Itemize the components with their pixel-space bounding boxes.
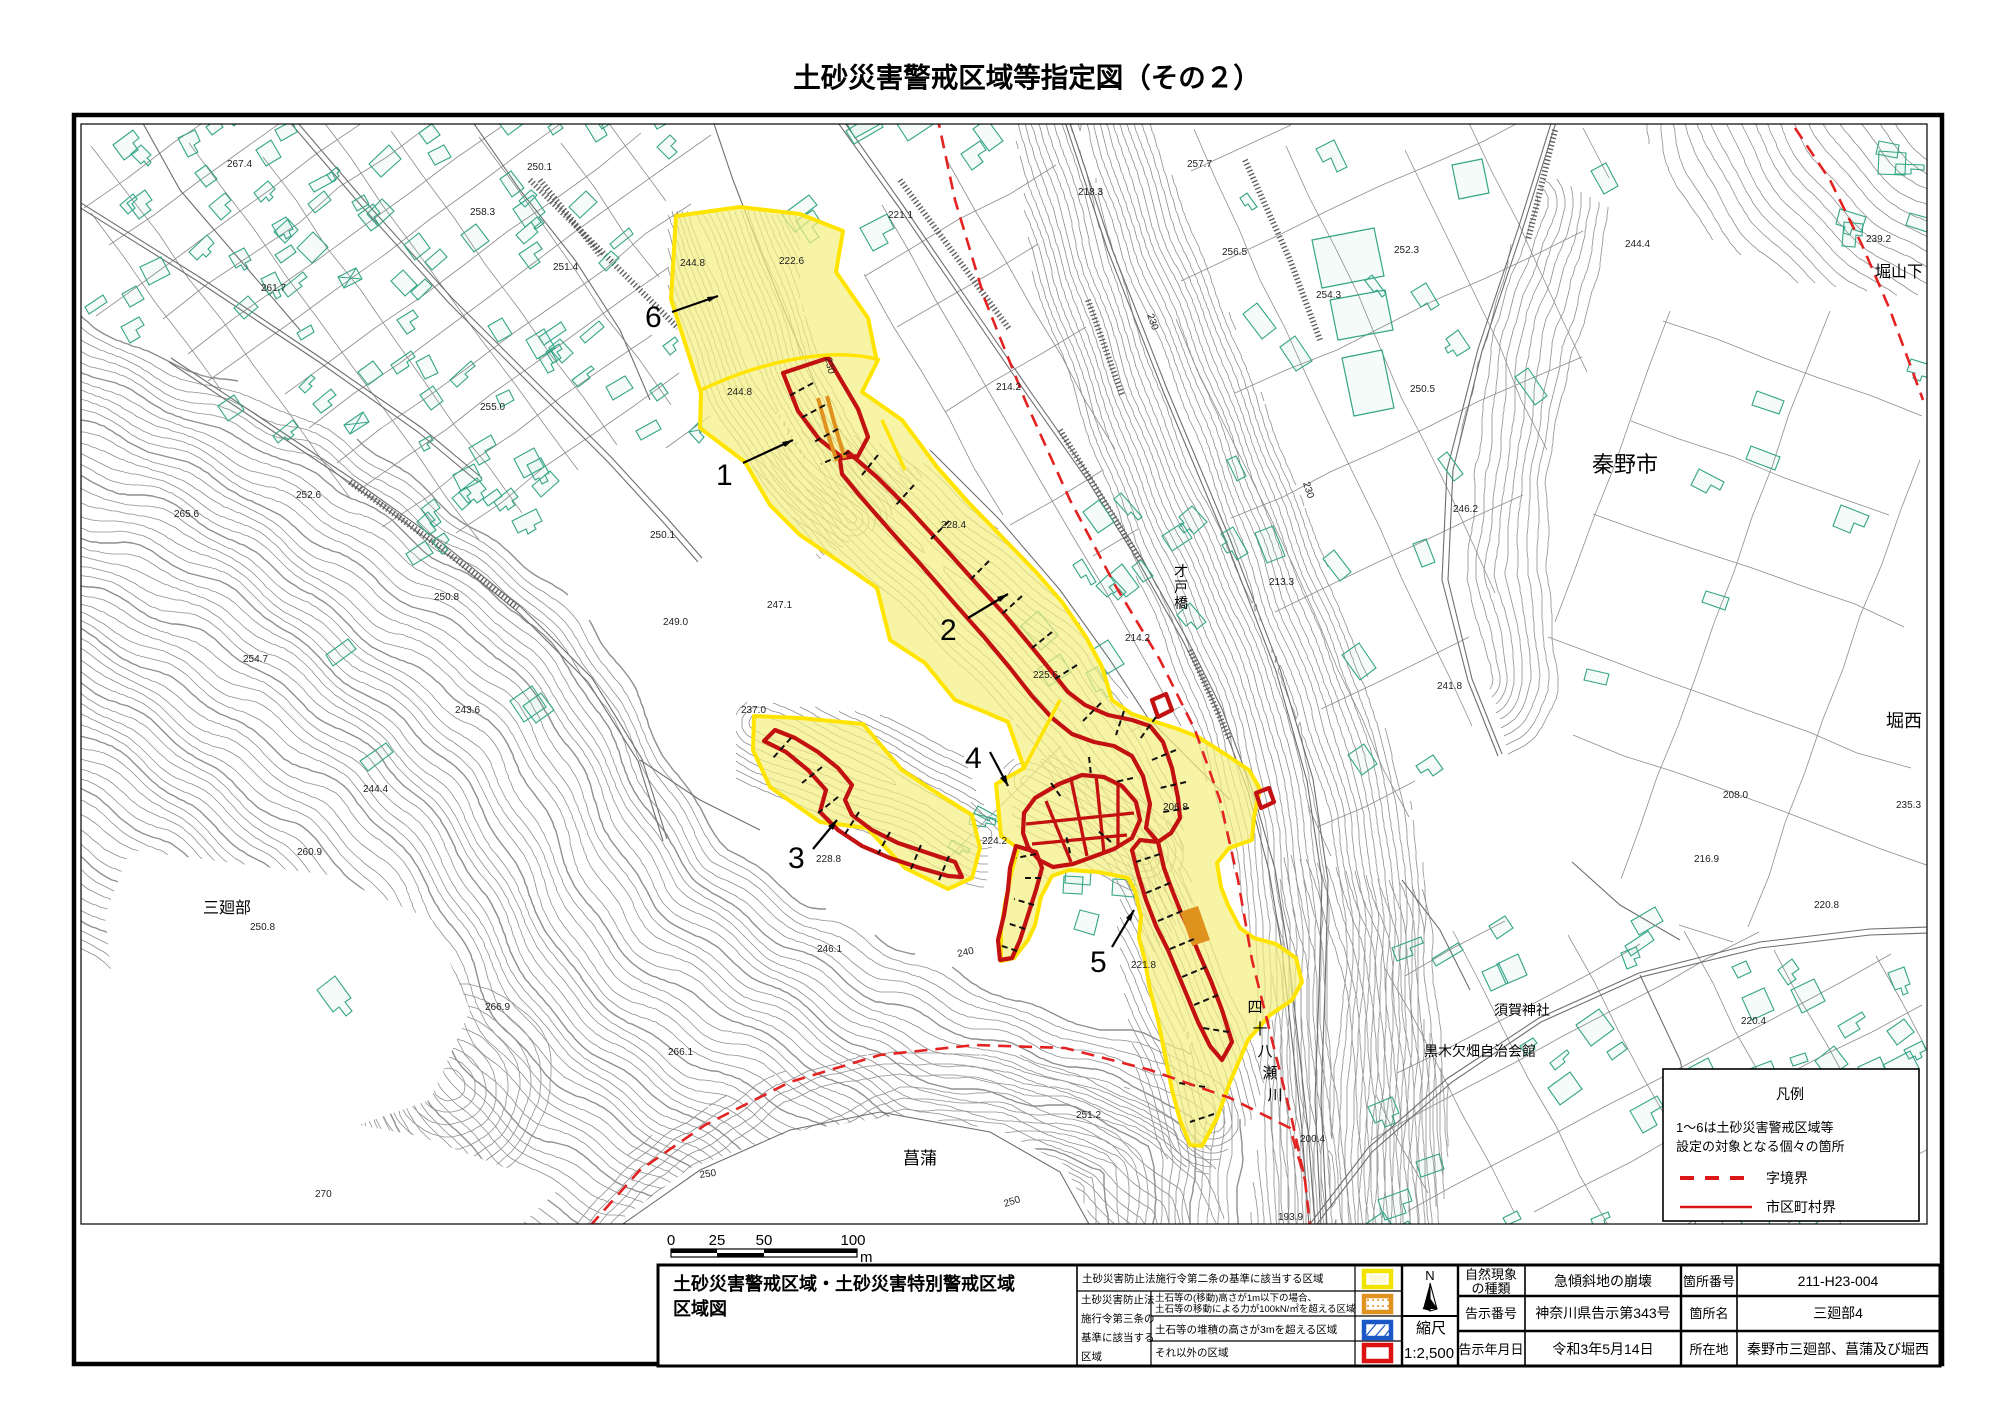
svg-text:0: 0 [667, 1232, 675, 1249]
svg-text:の種類: の種類 [1471, 1281, 1510, 1296]
svg-text:214.2: 214.2 [996, 382, 1021, 393]
svg-text:区域: 区域 [1081, 1350, 1103, 1363]
svg-text:施行令第三条の: 施行令第三条の [1081, 1312, 1155, 1325]
svg-text:254.7: 254.7 [243, 654, 268, 665]
svg-text:縮尺: 縮尺 [1416, 1320, 1446, 1337]
svg-text:251.4: 251.4 [553, 262, 578, 273]
svg-text:堀山下: 堀山下 [1875, 263, 1923, 281]
svg-text:256.5: 256.5 [1222, 247, 1247, 258]
svg-text:それ以外の区域: それ以外の区域 [1155, 1346, 1229, 1359]
svg-text:250.1: 250.1 [527, 162, 552, 173]
svg-text:266.9: 266.9 [485, 1002, 510, 1013]
svg-text:239.2: 239.2 [1866, 234, 1891, 245]
svg-text:土砂災害警戒区域等指定図（その２）: 土砂災害警戒区域等指定図（その２） [793, 62, 1261, 93]
svg-text:三廻部4: 三廻部4 [1813, 1305, 1863, 1321]
svg-text:252.3: 252.3 [1394, 245, 1419, 256]
svg-text:249.0: 249.0 [663, 617, 688, 628]
svg-text:告示番号: 告示番号 [1465, 1306, 1517, 1321]
svg-text:266.1: 266.1 [668, 1047, 693, 1058]
svg-text:1～6は土砂災害警戒区域等: 1～6は土砂災害警戒区域等 [1676, 1120, 1833, 1135]
svg-text:菖蒲: 菖蒲 [903, 1149, 937, 1168]
svg-text:252.6: 252.6 [296, 490, 321, 501]
svg-text:267.4: 267.4 [227, 159, 252, 170]
svg-text:216.9: 216.9 [1694, 854, 1719, 865]
svg-text:2: 2 [940, 614, 957, 647]
svg-text:255.0: 255.0 [480, 402, 505, 413]
svg-text:244.4: 244.4 [1625, 239, 1650, 250]
svg-text:土砂災害防止法施行令第二条の基準に該当する区域: 土砂災害防止法施行令第二条の基準に該当する区域 [1082, 1272, 1324, 1285]
svg-text:5: 5 [1090, 946, 1107, 979]
svg-text:瀬: 瀬 [1262, 1065, 1277, 1082]
svg-text:251.2: 251.2 [1076, 1110, 1101, 1121]
svg-text:228.8: 228.8 [816, 854, 841, 865]
svg-text:m: m [860, 1249, 873, 1266]
svg-text:50: 50 [756, 1232, 773, 1249]
svg-text:土砂災害警戒区域・土砂災害特別警戒区域: 土砂災害警戒区域・土砂災害特別警戒区域 [673, 1273, 1015, 1294]
svg-text:221.1: 221.1 [888, 210, 913, 221]
svg-text:208.0: 208.0 [1723, 790, 1748, 801]
svg-text:区域図: 区域図 [673, 1298, 727, 1319]
svg-text:228.4: 228.4 [941, 520, 966, 531]
svg-text:246.1: 246.1 [817, 944, 842, 955]
svg-text:206.8: 206.8 [1163, 802, 1188, 813]
svg-text:224.2: 224.2 [982, 836, 1007, 847]
svg-text:4: 4 [965, 742, 982, 775]
svg-text:270: 270 [315, 1189, 332, 1200]
svg-text:十: 十 [1252, 1021, 1267, 1038]
svg-text:土石等の(移動)高さが1m以下の場合、: 土石等の(移動)高さが1m以下の場合、 [1155, 1292, 1317, 1304]
svg-text:川: 川 [1267, 1087, 1282, 1104]
svg-text:213.3: 213.3 [1269, 577, 1294, 588]
svg-text:200.4: 200.4 [1300, 1134, 1325, 1145]
svg-text:265.6: 265.6 [174, 509, 199, 520]
svg-text:箇所番号: 箇所番号 [1683, 1274, 1735, 1289]
svg-text:急傾斜地の崩壊: 急傾斜地の崩壊 [1554, 1273, 1652, 1289]
svg-text:257.7: 257.7 [1187, 159, 1212, 170]
svg-text:1: 1 [716, 459, 733, 492]
svg-text:須賀神社: 須賀神社 [1494, 1002, 1550, 1018]
svg-text:設定の対象となる個々の箇所: 設定の対象となる個々の箇所 [1676, 1139, 1845, 1154]
svg-text:100: 100 [840, 1232, 865, 1249]
svg-text:222.6: 222.6 [779, 256, 804, 267]
svg-text:244.4: 244.4 [363, 784, 388, 795]
svg-text:自然現象: 自然現象 [1465, 1267, 1517, 1282]
svg-text:220.4: 220.4 [1741, 1016, 1766, 1027]
svg-text:193.9: 193.9 [1278, 1212, 1303, 1223]
svg-text:戸: 戸 [1174, 579, 1188, 595]
svg-text:218.3: 218.3 [1078, 187, 1103, 198]
svg-text:254.3: 254.3 [1316, 290, 1341, 301]
svg-text:261.7: 261.7 [261, 283, 286, 294]
svg-text:211-H23-004: 211-H23-004 [1798, 1273, 1879, 1289]
svg-text:237.0: 237.0 [741, 705, 766, 716]
svg-text:241.8: 241.8 [1437, 681, 1462, 692]
svg-text:243.6: 243.6 [455, 705, 480, 716]
svg-text:250.5: 250.5 [1410, 384, 1435, 395]
svg-text:市区町村界: 市区町村界 [1766, 1199, 1836, 1215]
svg-text:四: 四 [1247, 999, 1262, 1016]
svg-text:所在地: 所在地 [1689, 1342, 1728, 1357]
svg-text:基準に該当する: 基準に該当する [1081, 1331, 1155, 1344]
svg-text:土石等の移動による力が100kN/㎡を超える区域: 土石等の移動による力が100kN/㎡を超える区域 [1155, 1303, 1356, 1315]
svg-text:橋: 橋 [1174, 595, 1188, 611]
svg-text:260.9: 260.9 [297, 847, 322, 858]
svg-text:235.3: 235.3 [1896, 800, 1921, 811]
svg-text:214.2: 214.2 [1125, 633, 1150, 644]
svg-text:黒木欠畑自治会館: 黒木欠畑自治会館 [1424, 1043, 1536, 1059]
svg-text:八: 八 [1257, 1043, 1272, 1060]
svg-text:告示年月日: 告示年月日 [1458, 1342, 1523, 1357]
svg-text:247.1: 247.1 [767, 600, 792, 611]
svg-text:220.8: 220.8 [1814, 900, 1839, 911]
svg-text:土砂災害防止法: 土砂災害防止法 [1081, 1293, 1155, 1306]
svg-text:6: 6 [645, 301, 662, 334]
svg-text:字境界: 字境界 [1766, 1170, 1808, 1186]
svg-text:244.8: 244.8 [680, 258, 705, 269]
svg-text:箇所名: 箇所名 [1689, 1306, 1728, 1321]
svg-text:N: N [1425, 1268, 1434, 1283]
svg-text:神奈川県告示第343号: 神奈川県告示第343号 [1535, 1305, 1670, 1321]
svg-text:221.8: 221.8 [1131, 960, 1156, 971]
svg-text:25: 25 [709, 1232, 726, 1249]
svg-text:244.8: 244.8 [727, 387, 752, 398]
svg-text:250.1: 250.1 [650, 530, 675, 541]
svg-text:土石等の堆積の高さが3mを超える区域: 土石等の堆積の高さが3mを超える区域 [1155, 1323, 1338, 1336]
svg-text:凡例: 凡例 [1776, 1086, 1804, 1102]
svg-text:堀西: 堀西 [1886, 711, 1922, 731]
svg-text:250.8: 250.8 [434, 592, 459, 603]
svg-text:三廻部: 三廻部 [203, 899, 251, 917]
svg-text:秦野市: 秦野市 [1592, 452, 1658, 477]
svg-text:才: 才 [1174, 563, 1188, 579]
svg-text:秦野市三廻部、菖蒲及び堀西: 秦野市三廻部、菖蒲及び堀西 [1747, 1341, 1929, 1357]
svg-text:1:2,500: 1:2,500 [1404, 1345, 1454, 1362]
svg-text:250.8: 250.8 [250, 922, 275, 933]
svg-text:225.6: 225.6 [1033, 670, 1058, 681]
svg-text:258.3: 258.3 [470, 207, 495, 218]
svg-text:令和3年5月14日: 令和3年5月14日 [1552, 1341, 1653, 1357]
svg-text:246.2: 246.2 [1453, 504, 1478, 515]
svg-text:3: 3 [788, 842, 805, 875]
